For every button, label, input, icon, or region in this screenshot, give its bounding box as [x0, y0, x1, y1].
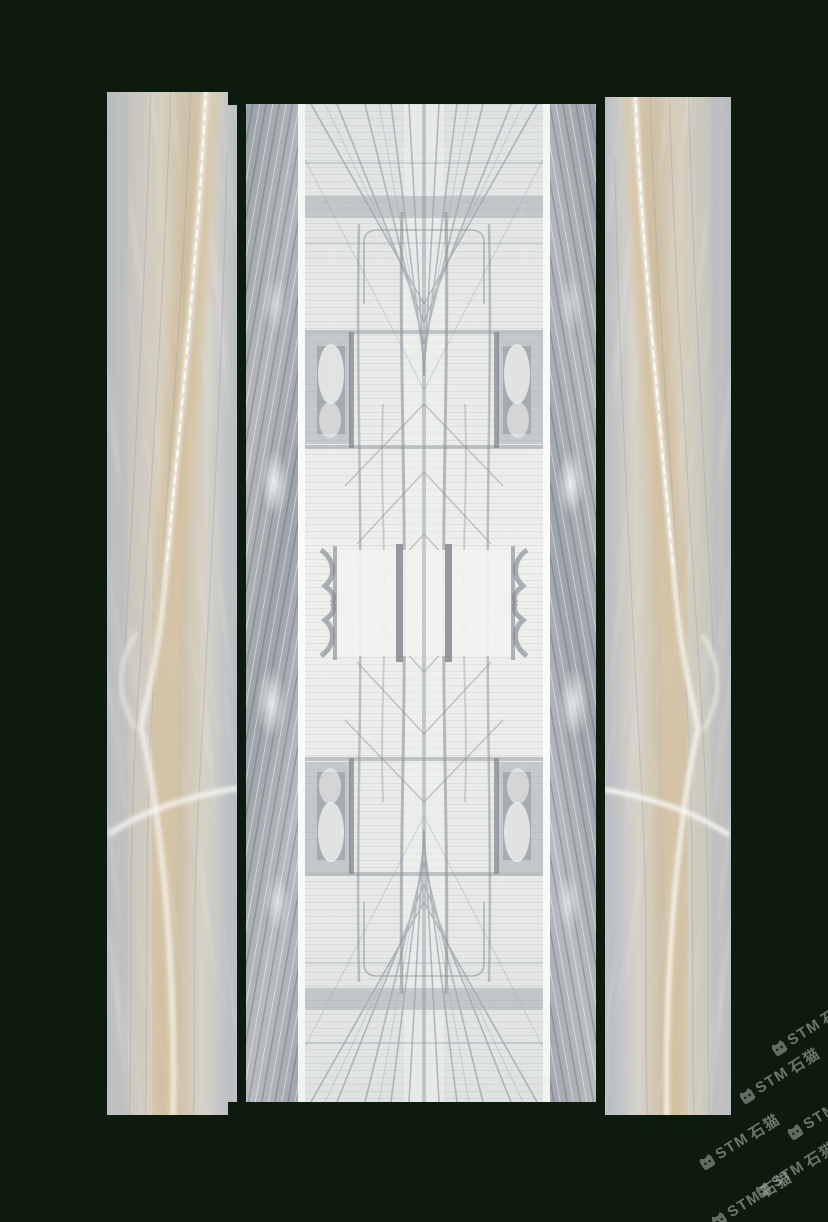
- right-marble-slab: [605, 97, 731, 1115]
- marble-texture: [107, 92, 237, 1115]
- watermark-text-latin: STM: [712, 1130, 752, 1164]
- slab-corner-notch: [228, 1102, 237, 1115]
- watermark-text-latin: STM: [784, 1016, 824, 1050]
- stm-watermark: STM 石猫: [694, 1108, 784, 1175]
- watermark-text-latin: STM: [724, 1188, 764, 1222]
- watermark-text-latin: STM: [800, 1100, 828, 1134]
- center-feature-wall: [246, 104, 596, 1102]
- watermark-text-cn: 石猫: [745, 1108, 785, 1144]
- product-image-canvas: STM 石猫 STM 石猫 STM 石猫 STM 石猫 STM 石猫 STM 石…: [0, 0, 828, 1222]
- center-left-border-slab: [246, 104, 298, 1102]
- bookmatch-marble-pattern: [305, 104, 543, 1102]
- slab-corner-notch: [228, 92, 237, 105]
- stm-watermark: STM 石猫: [782, 1078, 828, 1145]
- white-trim-stripe-right: [543, 104, 550, 1102]
- left-marble-slab: [107, 92, 237, 1115]
- marble-texture: [605, 97, 731, 1115]
- center-right-border-slab: [550, 104, 596, 1102]
- stm-watermark: STM 石猫: [706, 1166, 796, 1222]
- watermark-text-latin: STM: [752, 1064, 792, 1098]
- white-trim-stripe-left: [298, 104, 305, 1102]
